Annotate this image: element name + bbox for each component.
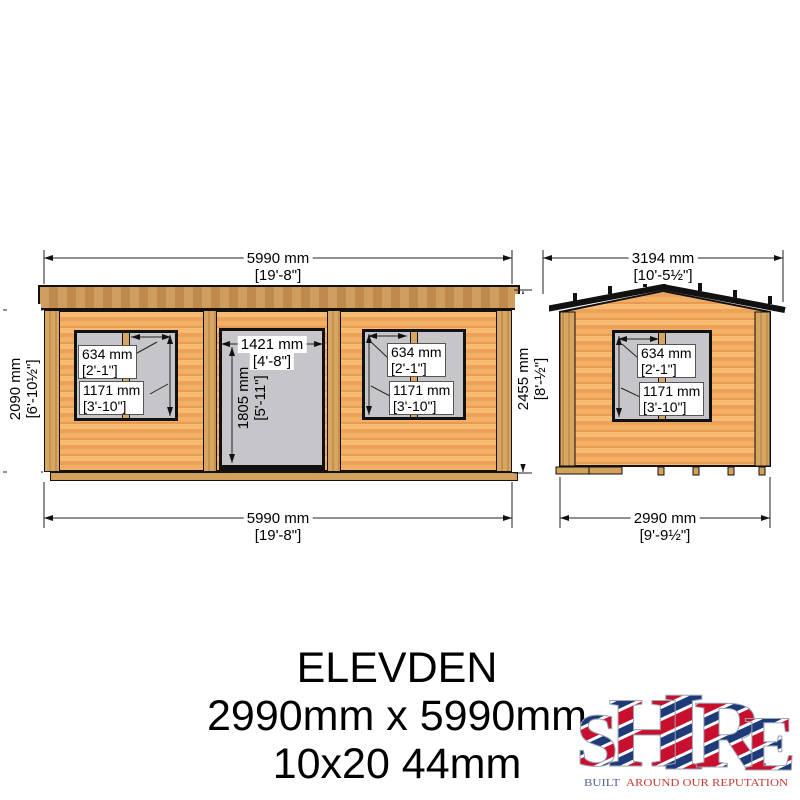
front-top-width-label: 5990 mm [19'-8"] bbox=[244, 250, 313, 284]
door-height-label: 1805 mm [5'-11"] bbox=[235, 313, 269, 483]
logo-tagline-rest: AROUND OUR REPUTATION bbox=[626, 778, 788, 789]
left-window-height-label: 1171 mm [3'-10"] bbox=[79, 381, 144, 415]
right-window-height-label: 1171 mm [3'-10"] bbox=[389, 381, 454, 415]
side-window-width-label: 634 mm [2'-1"] bbox=[637, 344, 696, 378]
left-window-width-label: 634 mm [2'-1"] bbox=[78, 345, 137, 379]
front-bottom-width-label: 5990 mm [19'-8"] bbox=[244, 510, 313, 544]
logo-tagline-built: BUILT bbox=[584, 778, 620, 789]
side-window-height-label: 1171 mm [3'-10"] bbox=[639, 382, 704, 416]
shire-logo: S H I R E BUILT AROUND OUR REPUTATION bbox=[570, 682, 800, 794]
right-window-width-label: 634 mm [2'-1"] bbox=[387, 343, 446, 377]
front-wall-height-label: 2090 mm [6'-10½"] bbox=[7, 304, 41, 474]
logo-letter-e: E bbox=[744, 700, 796, 787]
ridge-height-label: 2455 mm [8'-½"] bbox=[515, 294, 549, 464]
side-roof-width-label: 3194 mm [10'-5½"] bbox=[629, 250, 698, 284]
elevation-drawing-sheet: 5990 mm [19'-8"] 5990 mm [19'-8"] 2090 m… bbox=[0, 0, 800, 800]
side-wall-width-label: 2990 mm [9'-9½"] bbox=[631, 510, 700, 544]
